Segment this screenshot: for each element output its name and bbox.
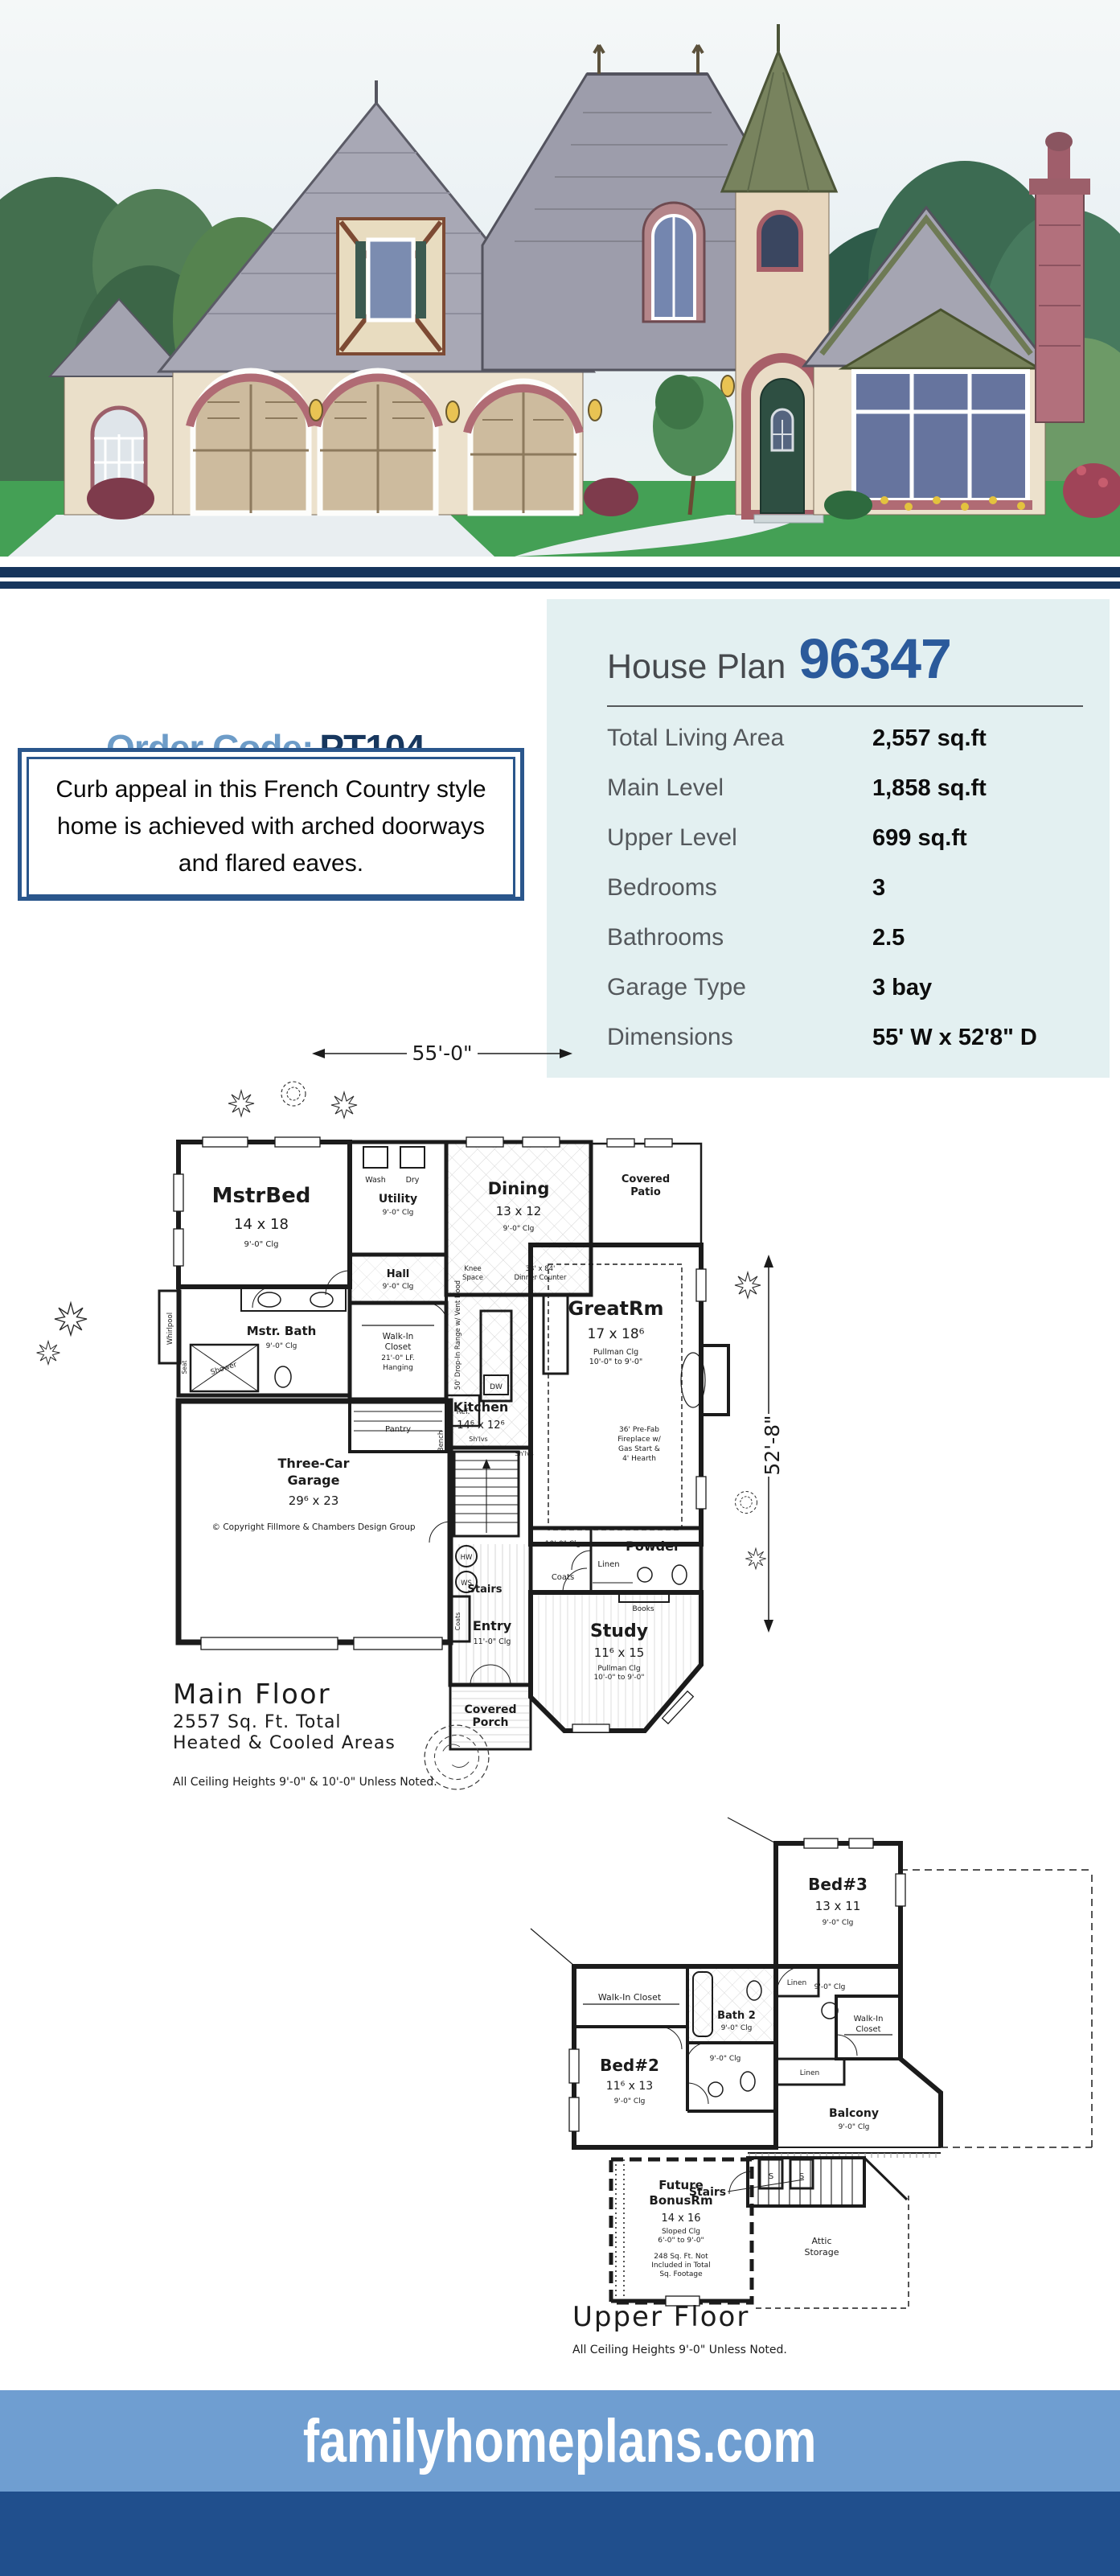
toilet-icon [672, 1565, 687, 1584]
svg-text:9'-0" Clg: 9'-0" Clg [823, 1919, 854, 1927]
main-floor-caption: Main Floor 2557 Sq. Ft. Total Heated & C… [173, 1678, 437, 1789]
svg-text:11'-0" Clg: 11'-0" Clg [474, 1637, 511, 1646]
svg-text:9'-0" Clg: 9'-0" Clg [710, 2055, 741, 2063]
dimension-depth: 52'-8" [761, 1255, 784, 1633]
spec-row: Upper Level699 sq.ft [607, 813, 1110, 863]
svg-text:14⁶ x 12⁶: 14⁶ x 12⁶ [457, 1419, 504, 1432]
svg-text:33' x 84': 33' x 84' [526, 1265, 556, 1273]
svg-text:Closet: Closet [855, 2025, 880, 2034]
svg-text:248 Sq. Ft. Not: 248 Sq. Ft. Not [654, 2253, 708, 2261]
plan-number: 96347 [798, 627, 951, 691]
spec-value: 2.5 [872, 925, 905, 951]
svg-text:55'-0": 55'-0" [412, 1041, 472, 1065]
svg-text:13 x 11: 13 x 11 [815, 1899, 861, 1913]
washer-icon [363, 1147, 388, 1168]
svg-text:Porch: Porch [472, 1716, 508, 1729]
svg-text:Sh'lvs: Sh'lvs [469, 1436, 487, 1443]
caption-title: Main Floor [173, 1678, 331, 1711]
room-label-bed3: Bed#3 [808, 1875, 868, 1894]
upper-floor-caption: Upper Floor All Ceiling Heights 9'-0" Un… [572, 2301, 787, 2356]
stair-risers [758, 2158, 852, 2206]
svg-text:Dry: Dry [406, 1176, 420, 1185]
title-divider [607, 705, 1083, 707]
svg-text:Books: Books [632, 1605, 654, 1613]
svg-text:10'-0" to 9'-0": 10'-0" to 9'-0" [589, 1358, 643, 1366]
description-text: Curb appeal in this French Country style… [29, 768, 513, 885]
page: Order Code:PT104 Curb appeal in this Fre… [0, 0, 1120, 2576]
garage-doors [190, 371, 580, 513]
svg-text:6'-0" to 9'-0": 6'-0" to 9'-0" [658, 2237, 704, 2245]
spec-row: Total Living Area2,557 sq.ft [607, 713, 1110, 763]
upper-floor-plan: Bed#3 13 x 11 9'-0" Clg Walk-In Closet B… [0, 1793, 1120, 2389]
spec-label: Total Living Area [607, 725, 872, 752]
divider-bar-top [0, 567, 1120, 577]
main-floor-plan: 55'-0" 52'-8" [0, 1029, 1120, 1793]
spec-row: Bedrooms3 [607, 863, 1110, 913]
svg-text:9'-0" Clg: 9'-0" Clg [503, 1225, 535, 1233]
copyright-text: © Copyright Fillmore & Chambers Design G… [211, 1522, 415, 1532]
sink-icon [638, 1567, 652, 1582]
spec-value: 3 [872, 875, 885, 902]
dimension-width: 55'-0" [312, 1041, 572, 1065]
room-label-bonus: Future [658, 2178, 704, 2192]
room-label-entry: Entry [473, 1618, 512, 1633]
svg-text:S: S [799, 2172, 804, 2181]
svg-text:36' Pre-Fab: 36' Pre-Fab [619, 1426, 659, 1434]
svg-text:14 x 18: 14 x 18 [234, 1216, 289, 1233]
dryer-icon [400, 1147, 425, 1168]
svg-text:Ref.: Ref. [457, 1408, 470, 1416]
svg-text:9'-0" Clg: 9'-0" Clg [814, 1983, 846, 1991]
svg-text:Heated & Cooled Areas: Heated & Cooled Areas [173, 1733, 396, 1753]
spec-value: 1,858 sq.ft [872, 775, 987, 802]
room-label-utility: Utility [379, 1193, 417, 1206]
site-name: familyhomeplans.com [303, 2406, 817, 2476]
spec-label: Garage Type [607, 974, 872, 1001]
svg-text:Pullman Clg: Pullman Clg [593, 1348, 638, 1357]
room-label-pantry: Pantry [385, 1425, 411, 1434]
svg-text:11⁶ x 13: 11⁶ x 13 [606, 2080, 653, 2093]
svg-text:Linen: Linen [597, 1560, 619, 1569]
spec-label: Upper Level [607, 824, 872, 852]
door-step [754, 515, 823, 523]
svg-text:10'-0" Clg: 10'-0" Clg [545, 1540, 581, 1548]
svg-text:29⁶ x 23: 29⁶ x 23 [289, 1493, 339, 1508]
svg-text:Coats: Coats [454, 1613, 462, 1631]
sink-icon [310, 1292, 333, 1307]
room-label-mstrbed: MstrBed [212, 1184, 311, 1208]
svg-text:52'-8": 52'-8" [761, 1415, 784, 1475]
svg-text:Sq. Footage: Sq. Footage [659, 2270, 703, 2278]
room-label-study: Study [590, 1621, 648, 1641]
page-title: House Plan 96347 [547, 599, 1110, 691]
svg-text:2557 Sq. Ft. Total: 2557 Sq. Ft. Total [173, 1712, 342, 1732]
svg-text:9'-0" Clg: 9'-0" Clg [266, 1342, 297, 1350]
spec-panel: House Plan 96347 Total Living Area2,557 … [547, 599, 1110, 1078]
footer-banner: familyhomeplans.com [0, 2390, 1120, 2492]
svg-text:Fireplace w/: Fireplace w/ [617, 1436, 661, 1444]
description-box-inner: Curb appeal in this French Country style… [27, 757, 515, 897]
svg-text:Gas Start &: Gas Start & [618, 1445, 660, 1453]
svg-text:BonusRm: BonusRm [649, 2193, 712, 2208]
svg-text:9'-0" Clg: 9'-0" Clg [244, 1240, 279, 1249]
svg-text:S: S [769, 2172, 773, 2181]
room-label-mbath: Mstr. Bath [247, 1324, 317, 1338]
svg-text:4' Hearth: 4' Hearth [622, 1455, 656, 1463]
dormer-window-icon [368, 240, 413, 320]
svg-text:50' Drop-In Range w/ Vent Hood: 50' Drop-In Range w/ Vent Hood [454, 1280, 462, 1390]
svg-text:Pullman Clg: Pullman Clg [597, 1665, 640, 1673]
svg-text:HW: HW [461, 1554, 473, 1562]
upper-room-labels: Bed#3 13 x 11 9'-0" Clg Walk-In Closet B… [598, 1875, 884, 2278]
svg-text:10'-0" to 9'-0": 10'-0" to 9'-0" [593, 1674, 644, 1682]
caption-note: All Ceiling Heights 9'-0" Unless Noted. [572, 2344, 787, 2356]
svg-text:Garage: Garage [288, 1473, 340, 1488]
caption-note: All Ceiling Heights 9'-0" & 10'-0" Unles… [173, 1776, 437, 1789]
spec-row: Bathrooms2.5 [607, 913, 1110, 963]
svg-text:Wash: Wash [365, 1176, 386, 1185]
room-label-patio: Covered [622, 1173, 670, 1185]
title-prefix: House Plan [607, 647, 786, 687]
spec-label: Main Level [607, 774, 872, 802]
room-label-garage: Three-Car [278, 1456, 350, 1471]
svg-text:Hanging: Hanging [383, 1364, 413, 1372]
svg-text:11⁶ x 15: 11⁶ x 15 [594, 1645, 645, 1660]
turret-window-icon [759, 212, 801, 269]
bay-window-icon [854, 372, 1028, 500]
room-label-powder: Powder [626, 1539, 680, 1554]
svg-text:Storage: Storage [804, 2247, 839, 2258]
svg-text:9'-0" Clg: 9'-0" Clg [721, 2024, 753, 2032]
sink-icon [708, 2082, 723, 2097]
dinner-counter [544, 1295, 568, 1374]
svg-text:21'-0" LF.: 21'-0" LF. [381, 1354, 415, 1362]
driveway [8, 515, 494, 557]
svg-text:9'-0" Clg: 9'-0" Clg [614, 2097, 646, 2106]
svg-text:Space: Space [462, 1274, 483, 1282]
spec-rows: Total Living Area2,557 sq.ft Main Level1… [547, 713, 1110, 1062]
spec-value: 3 bay [872, 975, 932, 1001]
svg-text:Sloped Clg: Sloped Clg [662, 2228, 700, 2236]
svg-text:Whirlpool: Whirlpool [166, 1313, 174, 1345]
svg-text:Closet: Closet [385, 1342, 412, 1352]
divider-bar-bottom [0, 581, 1120, 589]
svg-text:17 x 18⁶: 17 x 18⁶ [588, 1326, 645, 1342]
house-illustration [0, 0, 1120, 567]
svg-text:Bench: Bench [437, 1431, 445, 1452]
svg-text:Coats: Coats [552, 1573, 574, 1582]
svg-text:9'-0" Clg: 9'-0" Clg [839, 2123, 870, 2131]
spec-row: Main Level1,858 sq.ft [607, 763, 1110, 813]
room-label-hall: Hall [387, 1268, 410, 1280]
svg-text:Linen: Linen [800, 2069, 819, 2077]
svg-text:9'-0" Clg: 9'-0" Clg [383, 1209, 414, 1217]
spec-value: 699 sq.ft [872, 825, 967, 852]
toilet-icon [741, 2072, 755, 2091]
svg-text:14 x 16: 14 x 16 [661, 2212, 700, 2225]
room-label-wic-right: Walk-In [854, 2015, 884, 2023]
room-label-bath2: Bath 2 [717, 2010, 756, 2022]
room-label-porch: Covered [465, 1703, 517, 1716]
caption-title: Upper Floor [572, 2301, 749, 2333]
svg-text:Included in Total: Included in Total [651, 2262, 710, 2270]
toilet-icon [275, 1366, 291, 1387]
svg-text:Patio: Patio [630, 1186, 661, 1198]
svg-text:Linen: Linen [787, 1979, 806, 1987]
room-label-balcony: Balcony [829, 2107, 879, 2120]
spec-label: Bathrooms [607, 924, 872, 951]
spec-label: Bedrooms [607, 874, 872, 902]
spec-value: 2,557 sq.ft [872, 725, 987, 752]
svg-text:9'-0" Clg: 9'-0" Clg [383, 1283, 414, 1291]
room-label-wic-left: Walk-In Closet [598, 1992, 662, 2003]
svg-text:Knee: Knee [464, 1265, 481, 1273]
sink-icon [258, 1292, 281, 1307]
room-label-attic: Attic [811, 2236, 831, 2246]
room-label-stairs: Stairs [468, 1584, 503, 1596]
spec-row: Garage Type3 bay [607, 963, 1110, 1013]
room-label-bed2: Bed#2 [600, 2056, 659, 2075]
svg-text:Seat: Seat [181, 1360, 188, 1374]
room-label-wic: Walk-In [383, 1332, 414, 1341]
svg-text:DW: DW [490, 1383, 503, 1391]
room-label-greatrm: GreatRm [568, 1297, 664, 1320]
svg-text:13 x 12: 13 x 12 [496, 1204, 542, 1218]
room-label-dining: Dining [488, 1179, 550, 1198]
vanity [241, 1288, 346, 1311]
footer-bottom-band [0, 2492, 1120, 2576]
svg-text:Dinner Counter: Dinner Counter [514, 1274, 567, 1282]
description-box: Curb appeal in this French Country style… [18, 748, 524, 901]
svg-text:Sh'lvs: Sh'lvs [515, 1450, 533, 1457]
